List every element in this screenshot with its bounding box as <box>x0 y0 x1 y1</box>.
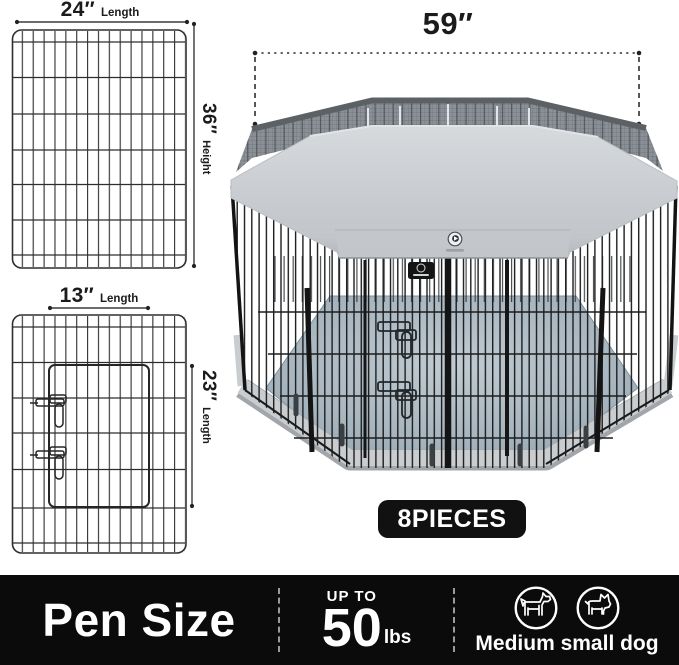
info-bar: Pen Size UP TO 50 lbs Medium small <box>0 575 679 665</box>
weight-unit: lbs <box>384 627 411 652</box>
full-panel-width-label: 24″ Length <box>12 0 188 22</box>
door-height-value: 23″ <box>197 370 219 401</box>
weight-section: UP TO 50 lbs <box>280 588 453 653</box>
door-panel-diagram <box>13 306 195 553</box>
dog-size-section: Medium small dog <box>455 585 679 656</box>
door-height-dimension <box>190 364 194 508</box>
full-panel-diagram <box>13 20 197 268</box>
medium-dog-icon <box>513 585 559 631</box>
full-panel-height-dimension <box>192 22 196 268</box>
door-width-value: 13″ <box>60 284 94 308</box>
brand-tag <box>408 262 434 279</box>
pen-illustration <box>230 51 677 468</box>
pen-size-title: Pen Size <box>42 593 235 647</box>
product-infographic: 24″ Length 36″ Height 13″ Length 23″ Len… <box>0 0 679 665</box>
full-panel-height-label: 36″ Height <box>197 103 219 174</box>
pieces-badge: 8PIECES <box>378 500 526 538</box>
dog-size-label: Medium small dog <box>475 632 658 656</box>
full-panel-height-value: 36″ <box>197 103 219 134</box>
small-dog-icon <box>575 585 621 631</box>
door-height-unit: Length <box>200 407 212 444</box>
weight-value: 50 <box>322 605 382 653</box>
door-width-unit: Length <box>100 293 138 305</box>
pen-width-label: 59″ <box>378 6 518 42</box>
door-height-label: 23″ Length <box>197 370 219 444</box>
full-panel-width-unit: Length <box>101 7 139 19</box>
full-panel-width-value: 24″ <box>61 0 95 22</box>
full-panel-height-unit: Height <box>200 140 212 174</box>
door-width-label: 13″ Length <box>40 284 158 308</box>
pen-size-section: Pen Size <box>0 593 278 647</box>
